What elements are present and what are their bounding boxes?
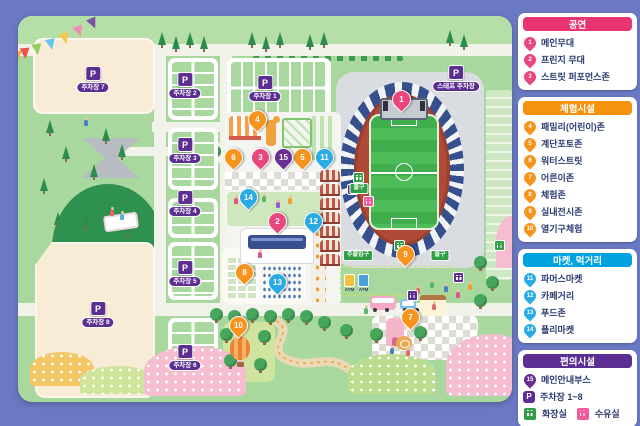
- pine-tree-icon: [306, 34, 314, 47]
- legend-panel-experience: 체험시설 4패밀리(어린이)존 5계단포토존 6워터스트릿 7어른이존 8체험존…: [518, 97, 637, 242]
- pine-tree-icon: [276, 32, 284, 45]
- round-tree-icon: [254, 358, 267, 371]
- market-tent: [320, 184, 340, 196]
- legend-item: 4패밀리(어린이)존: [523, 118, 632, 135]
- person-figure: [468, 284, 472, 290]
- legend-item-label: 주차장 1~8: [540, 390, 583, 403]
- legend-item: 11파머스마켓: [523, 270, 632, 287]
- parking-icon: P: [257, 75, 273, 90]
- parking-icon: P: [177, 190, 193, 205]
- parking-badge-4: P주차장 4: [168, 190, 201, 217]
- pine-tree-icon: [40, 178, 48, 191]
- market-tent: [320, 254, 340, 266]
- legend-item: 8체험존: [523, 186, 632, 203]
- pine-tree-icon: [158, 32, 166, 45]
- legend-panel-amenities: 편의시설 15메인안내부스 P주차장 1~8 화장실 수유실: [518, 350, 637, 426]
- climbing-frame: [282, 118, 312, 148]
- round-tree-icon: [414, 326, 427, 339]
- legend-item: 9실내전시존: [523, 203, 632, 220]
- soccer-field: [369, 114, 439, 230]
- person-figure: [406, 350, 410, 356]
- parking-badge-7: P주차장 7: [76, 66, 109, 93]
- legend-item: 10열기구체험: [523, 220, 632, 237]
- goal-box-bottom: [391, 218, 417, 229]
- pin-icon: 14: [522, 321, 539, 338]
- legend-item-label: 어른이존: [541, 171, 574, 184]
- person-figure: [444, 286, 448, 292]
- legend-header-amenities: 편의시설: [523, 354, 632, 368]
- round-tree-icon: [246, 308, 259, 321]
- pine-tree-icon: [200, 36, 208, 49]
- legend-item: 2프린지 무대: [523, 51, 632, 68]
- parking-icon: P: [177, 72, 193, 87]
- pin-icon: 9: [522, 203, 539, 220]
- pin-icon: 7: [522, 169, 539, 186]
- legend-item: 15메인안내부스: [523, 371, 632, 388]
- giraffe-statue: [266, 120, 276, 146]
- main-entrance-sign: 주출입구: [343, 250, 373, 261]
- parking-label: 주차장 6: [168, 360, 201, 371]
- pin-icon: 8: [522, 186, 539, 203]
- food-truck-pink: [370, 296, 396, 310]
- vertical-road-left: [154, 56, 166, 316]
- pine-tree-icon: [172, 36, 180, 49]
- pine-tree-icon: [82, 214, 90, 227]
- legend-item-label: 스트릿 퍼포먼스존: [541, 70, 610, 83]
- locker-icon: [407, 290, 418, 301]
- round-tree-icon: [264, 310, 277, 323]
- pretzel-sculpture: [396, 336, 412, 350]
- parking-badge-3: P주차장 3: [168, 137, 201, 164]
- atm-label: ATM: [345, 287, 354, 293]
- pin-icon: 13: [522, 304, 539, 321]
- market-tent: [320, 170, 340, 182]
- parking-label: 주차장 3: [168, 153, 201, 164]
- person-figure: [456, 292, 460, 298]
- legend-item: 3스트릿 퍼포먼스존: [523, 68, 632, 85]
- nursing-room-icon: [363, 196, 374, 207]
- pine-tree-icon: [54, 212, 62, 225]
- pin-icon: 11: [522, 270, 539, 287]
- parking-icon: P: [177, 260, 193, 275]
- person-figure: [432, 304, 436, 310]
- parking-label: 주차장 1: [248, 91, 281, 102]
- person-figure: [120, 214, 124, 220]
- legend-sidebar: 공연 1메인무대 2프린지 무대 3스트릿 퍼포먼스존 체험시설 4패밀리(어린…: [518, 13, 637, 426]
- atm-machine-icon: [358, 274, 369, 287]
- pin-icon: 3: [522, 68, 539, 85]
- legend-item: 14플리마켓: [523, 321, 632, 338]
- pine-tree-icon: [186, 32, 194, 45]
- pin-icon: 15: [522, 371, 539, 388]
- pine-tree-icon: [460, 34, 468, 47]
- round-tree-icon: [318, 316, 331, 329]
- round-tree-icon: [258, 330, 271, 343]
- truck-window: [402, 301, 414, 306]
- legend-item: 7어른이존: [523, 169, 632, 186]
- parking-label: 주차장 7: [76, 82, 109, 93]
- parking-badge-1: P주차장 1: [248, 75, 281, 102]
- parking-badge-6: P주차장 6: [168, 344, 201, 371]
- pin-icon: 4: [522, 118, 539, 135]
- legend-item-label: 메인무대: [541, 36, 574, 49]
- pine-tree-icon: [118, 144, 126, 157]
- legend-item-label: 메인안내부스: [541, 373, 591, 386]
- legend-header-performance: 공연: [523, 17, 632, 31]
- locker-icon: [453, 272, 464, 283]
- parking-label: 주차장 8: [81, 317, 114, 328]
- atm-kiosk: ATM: [344, 274, 355, 293]
- bunting-flag: [31, 43, 42, 55]
- staff-parking-badge: P스태프 주차장: [432, 65, 480, 92]
- legend-item-label: 체험존: [541, 188, 566, 201]
- person-figure: [430, 282, 434, 288]
- person-figure: [234, 198, 238, 204]
- person-figure: [262, 196, 266, 202]
- legend-item: 5계단포토존: [523, 135, 632, 152]
- legend-item-label: 파머스마켓: [541, 272, 582, 285]
- exit-sign: 출구: [349, 183, 368, 194]
- flower-bush-green: [348, 354, 436, 394]
- market-tent: [320, 198, 340, 210]
- round-tree-icon: [300, 310, 313, 323]
- person-figure: [84, 120, 88, 126]
- person-figure: [258, 252, 262, 258]
- legend-item-label: 플리마켓: [541, 323, 574, 336]
- parking-badge-5: P주차장 5: [168, 260, 201, 287]
- bunting-flag: [18, 51, 22, 62]
- parking-icon: P: [523, 391, 535, 403]
- legend-header-market: 마켓, 먹거리: [523, 253, 632, 267]
- pin-icon: 6: [522, 152, 539, 169]
- round-tree-icon: [474, 256, 487, 269]
- parking-icon: P: [448, 65, 464, 80]
- legend-item-label: 카페거리: [541, 289, 574, 302]
- parking-label: 주차장 5: [168, 276, 201, 287]
- person-figure: [364, 308, 368, 314]
- legend-item-label: 푸드존: [541, 306, 566, 319]
- nursing-room-icon: [576, 407, 590, 421]
- toilet-icon: [494, 240, 505, 251]
- toilet-icon: [353, 172, 364, 183]
- fringe-stage-canopy: [248, 235, 306, 249]
- pin-icon: 12: [522, 287, 539, 304]
- round-tree-icon: [340, 324, 353, 337]
- truck-window: [372, 298, 394, 303]
- atm-machine-icon: [344, 274, 355, 287]
- atm-kiosk: ATM: [358, 274, 369, 293]
- parking-icon: P: [177, 137, 193, 152]
- atm-label: ATM: [359, 287, 368, 293]
- parking-badge-8: P주차장 8: [81, 301, 114, 328]
- round-tree-icon: [486, 276, 499, 289]
- pin-icon: 2: [522, 51, 539, 68]
- pine-tree-icon: [320, 32, 328, 45]
- hot-air-balloon: [230, 336, 250, 360]
- parking-icon: P: [177, 344, 193, 359]
- parking-badge-2: P주차장 2: [168, 72, 201, 99]
- market-tent: [320, 226, 340, 238]
- pin-icon: 5: [522, 135, 539, 152]
- legend-header-experience: 체험시설: [523, 101, 632, 115]
- pine-tree-icon: [46, 120, 54, 133]
- legend-item: 6워터스트릿: [523, 152, 632, 169]
- legend-item-label: 계단포토존: [541, 137, 582, 150]
- bunting-flag: [45, 38, 57, 51]
- person-figure: [288, 198, 292, 204]
- legend-panel-performance: 공연 1메인무대 2프린지 무대 3스트릿 퍼포먼스존: [518, 13, 637, 90]
- legend-panel-market: 마켓, 먹거리 11파머스마켓 12카페거리 13푸드존 14플리마켓: [518, 249, 637, 343]
- round-tree-icon: [370, 328, 383, 341]
- legend-item-label: 화장실: [542, 407, 567, 420]
- legend-item-label: 패밀리(어린이)존: [541, 120, 605, 133]
- pine-tree-icon: [102, 128, 110, 141]
- pine-tree-icon: [90, 164, 98, 177]
- pin-icon: 10: [522, 220, 539, 237]
- parking-label: 스태프 주차장: [432, 81, 480, 92]
- legend-item-label: 프린지 무대: [541, 53, 585, 66]
- pine-tree-icon: [248, 32, 256, 45]
- legend-item: P주차장 1~8: [523, 388, 632, 405]
- round-tree-icon: [282, 308, 295, 321]
- festival-map-screen: ATM ATM: [0, 0, 640, 426]
- legend-item: 12카페거리: [523, 287, 632, 304]
- legend-item-label: 워터스트릿: [541, 154, 582, 167]
- pine-tree-icon: [446, 30, 454, 43]
- parking-label: 주차장 2: [168, 88, 201, 99]
- legend-item-label: 수유실: [595, 407, 620, 420]
- person-figure: [276, 202, 280, 208]
- pin-icon: 1: [522, 34, 539, 51]
- pine-tree-icon: [262, 36, 270, 49]
- exit-sign: 출구: [430, 250, 449, 261]
- person-figure: [390, 348, 394, 354]
- venue-map: ATM ATM: [18, 16, 512, 402]
- legend-item: 13푸드존: [523, 304, 632, 321]
- person-figure: [110, 210, 114, 216]
- round-tree-icon: [474, 294, 487, 307]
- balloon-basket: [237, 362, 244, 367]
- legend-item: 화장실 수유실: [523, 405, 632, 422]
- legend-item: 1메인무대: [523, 34, 632, 51]
- round-tree-icon: [210, 308, 223, 321]
- legend-item-label: 실내전시존: [541, 205, 582, 218]
- parking-label: 주차장 4: [168, 206, 201, 217]
- parking-icon: P: [85, 66, 101, 81]
- market-tent: [320, 240, 340, 252]
- parking-icon: P: [90, 301, 106, 316]
- toilet-icon: [523, 407, 537, 421]
- pine-tree-icon: [62, 146, 70, 159]
- legend-item-label: 열기구체험: [541, 222, 582, 235]
